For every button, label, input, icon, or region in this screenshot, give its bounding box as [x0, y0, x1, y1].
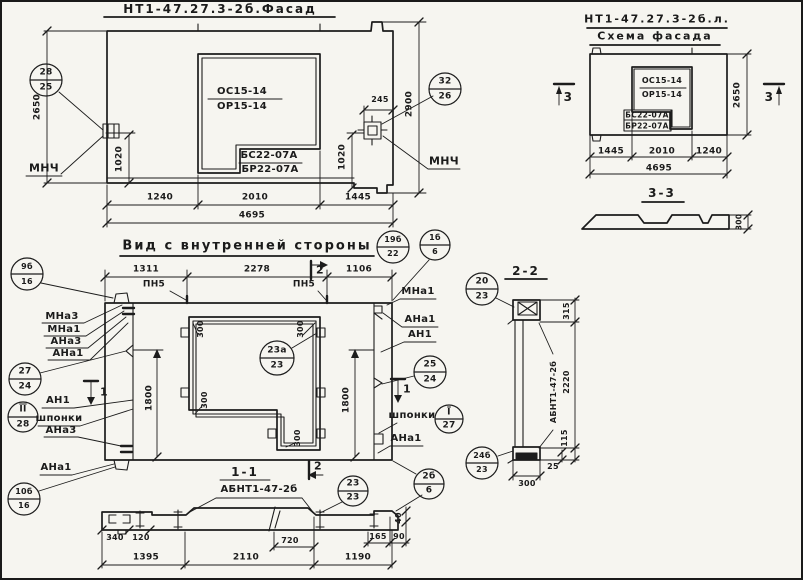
dim-label: 300 — [197, 320, 205, 338]
ref-circle-bottom: 6 — [432, 248, 438, 256]
ref-circle-top: 1б — [429, 234, 441, 242]
ref-circle-bottom: 22 — [387, 250, 399, 258]
key-label: шпонки — [36, 414, 83, 424]
dim-label: 300 — [201, 391, 209, 409]
ref-circle-bottom: 28 — [16, 421, 29, 430]
joint-label: ПН5 — [143, 281, 165, 290]
dim-label: 2650 — [734, 82, 743, 108]
dim-label: 340 — [106, 534, 124, 542]
ref-circle-top: 19б — [384, 236, 402, 244]
ref-circle-bottom: 24 — [423, 376, 436, 385]
ref-circle-bottom: 23 — [346, 494, 359, 503]
dim-label: 1106 — [346, 266, 372, 275]
anchor-label: АНа1 — [40, 463, 71, 473]
section-marker-2: 2 — [314, 461, 322, 472]
dim-ticks — [43, 18, 752, 569]
ref-circle-bottom: 24 — [18, 383, 31, 392]
ref-circle-top: 10б — [15, 488, 33, 496]
section-2-2-mark: АБНТ1-47-2б — [550, 361, 558, 423]
ref-circle-bottom: 16 — [18, 502, 30, 510]
dim-label: 2650 — [34, 94, 43, 120]
dim-label: 1020 — [116, 146, 125, 172]
dim-label: 315 — [563, 302, 571, 320]
dim-label: 4695 — [646, 165, 672, 174]
panel-outlines — [102, 22, 729, 530]
ref-circle-top: 23 — [346, 480, 359, 489]
joint-label: ПН5 — [293, 281, 315, 290]
ref-circle-bottom: 23 — [270, 362, 283, 371]
ref-circle-top: 25 — [423, 361, 436, 370]
ref-circle-bottom: 25 — [39, 84, 52, 93]
anchor-label: АНа1 — [390, 434, 421, 444]
scheme-subtitle: Схема фасада — [597, 31, 712, 42]
detail-lines — [103, 24, 692, 534]
ref-circle-bottom: 16 — [21, 278, 33, 286]
dim-label: 2900 — [406, 91, 415, 117]
dim-label: 1800 — [343, 387, 352, 413]
anchor-label: МНа1 — [47, 325, 80, 335]
facade-window-mark: БС22-07А — [240, 151, 297, 161]
dim-label: 1445 — [598, 148, 624, 157]
section-2-2-title: 2-2 — [512, 265, 540, 277]
anchor-label: АНа1 — [404, 315, 435, 325]
dim-label: 300 — [518, 480, 536, 488]
anchor-label: АН1 — [408, 330, 432, 340]
dim-label: 1190 — [345, 554, 371, 563]
ref-circle-bottom: 6 — [426, 487, 433, 496]
dim-label: 1395 — [133, 554, 159, 563]
ref-circle-top: 24б — [473, 452, 491, 460]
dim-label: 25 — [547, 463, 559, 471]
dim-label: 1240 — [147, 194, 173, 203]
anchor-label: АНа1 — [52, 349, 83, 359]
section-3-3-title: 3-3 — [648, 187, 676, 199]
dim-label: 300 — [297, 320, 305, 338]
dim-label: 165 — [369, 533, 387, 541]
section-marker-1: 1 — [100, 387, 108, 398]
ref-circle-bottom: 27 — [442, 422, 455, 431]
dim-label: 1311 — [133, 266, 159, 275]
scheme-window-mark: ОР15-14 — [642, 91, 682, 99]
section-marker-3: 3 — [564, 91, 573, 103]
anchor-plate — [516, 453, 537, 459]
scheme-window-mark: БР22-07А — [625, 122, 668, 130]
dim-label: 120 — [132, 534, 150, 542]
dim-label: 1240 — [696, 148, 722, 157]
dim-label: 115 — [561, 429, 569, 447]
facade-window-mark: ОР15-14 — [217, 102, 267, 112]
dim-label: 1020 — [339, 144, 348, 170]
anchor-label: АНа3 — [45, 426, 76, 436]
scheme-window-mark: ОС15-14 — [642, 77, 682, 85]
anchor-label: МНа1 — [401, 287, 434, 297]
dim-label: 4695 — [239, 212, 265, 221]
ref-circle-top: 23а — [267, 347, 287, 356]
dim-label: 2010 — [242, 194, 268, 203]
facade-title: НТ1-47.27.3-2б.Фасад — [123, 3, 317, 15]
ref-circle-top: 28 — [39, 69, 52, 78]
dim-label: 300 — [294, 429, 302, 447]
inner-title: Вид с внутренней стороны — [122, 240, 371, 253]
dim-label: 40 — [395, 512, 403, 524]
dim-label: 2010 — [649, 148, 675, 157]
ref-circle-top: 27 — [18, 368, 31, 377]
dim-label: 2220 — [563, 370, 571, 393]
section-1-1-title: 1-1 — [231, 466, 259, 478]
drawing-sheet: НТ1-47.27.3-2б.Фасад ОС15-14 ОР15-14 БС2… — [0, 0, 803, 580]
section-marker-3: 3 — [765, 91, 774, 103]
anchor-label: АН1 — [46, 396, 70, 406]
key-label: шпонки — [389, 411, 436, 421]
section-marker-2: 2 — [316, 265, 324, 276]
section-1-1-mark: АБНТ1-47-2б — [221, 485, 298, 495]
dim-label: 1445 — [345, 194, 371, 203]
dim-label: 300 — [735, 214, 743, 231]
anchor-label: МНа3 — [45, 312, 78, 322]
anchor-label: МНЧ — [29, 163, 59, 174]
ref-circle-bottom: 23 — [475, 293, 488, 302]
ref-circle-bottom: 26 — [438, 93, 451, 102]
ref-circle-top: 2б — [422, 473, 435, 482]
scheme-title: НТ1-47.27.3-2б.л. — [584, 14, 730, 25]
scheme-window-mark: БС22-07А — [625, 111, 668, 119]
anchor-label: АНа3 — [50, 337, 81, 347]
dim-label: 2278 — [244, 266, 270, 275]
dim-label: 720 — [281, 537, 299, 545]
anchor-label: МНЧ — [429, 156, 459, 167]
ref-circle-top: I — [447, 409, 451, 418]
section-marker-1: 1 — [403, 384, 411, 395]
facade-window-mark: ОС15-14 — [217, 87, 267, 97]
ref-circle-top: II — [19, 406, 26, 415]
ref-circle-top: 32 — [438, 78, 451, 87]
dim-label: 2110 — [233, 554, 259, 563]
facade-window-mark: БР22-07А — [241, 165, 298, 175]
dim-label: 245 — [371, 96, 389, 104]
ref-circle-top: 20 — [475, 278, 488, 287]
ref-circle-bottom: 23 — [476, 466, 488, 474]
dim-label: 1800 — [146, 385, 155, 411]
dim-label: 90 — [393, 533, 405, 541]
ref-circle-top: 9б — [21, 263, 33, 271]
